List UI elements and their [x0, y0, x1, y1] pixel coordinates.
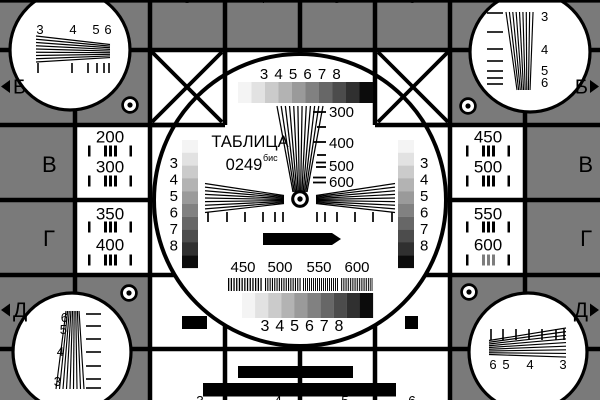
burst-stripe	[346, 278, 347, 291]
panel-freq-tick	[508, 255, 511, 266]
scale-number: 4	[170, 172, 178, 189]
edge-letter-d-right: Д	[574, 299, 588, 322]
scale-number: 3	[420, 155, 428, 172]
panel-freq-tick	[104, 222, 107, 233]
burst-stripe	[327, 278, 328, 291]
burst-stripe	[325, 278, 326, 291]
panel-freq-tick	[130, 255, 133, 266]
panel-freq-tick	[88, 176, 91, 187]
right-grayscale-staircase	[398, 140, 414, 268]
burst-stripe	[335, 278, 336, 291]
multiburst-bars	[228, 278, 372, 291]
grayscale-step	[252, 82, 266, 103]
burst-stripe	[319, 278, 320, 291]
edge-letter-g-right: Г	[580, 226, 592, 251]
burst-stripe	[281, 278, 282, 291]
wedge-tick-label: 400	[329, 135, 354, 152]
scale-number: 6	[303, 66, 311, 83]
panel-freq-tick	[492, 222, 495, 233]
grayscale-step	[182, 255, 198, 268]
corner-number: 6	[489, 357, 496, 372]
grayscale-step	[281, 293, 294, 318]
grayscale-step	[321, 293, 334, 318]
scale-number: 3	[170, 155, 178, 172]
grayscale-step	[347, 293, 360, 318]
grayscale-step	[333, 82, 347, 103]
burst-stripe	[361, 278, 362, 291]
top-grayscale-staircase	[238, 82, 373, 103]
target-marker-dot	[466, 289, 471, 294]
corner-number: 4	[526, 357, 533, 372]
panel-freq-tick	[482, 255, 485, 266]
panel-freq-tick	[487, 146, 490, 157]
burst-stripe	[345, 278, 346, 291]
corner-number: 5	[92, 22, 99, 37]
burst-stripe	[368, 278, 369, 291]
panel-freq-tick	[130, 176, 133, 187]
corner-circle	[469, 293, 587, 400]
panel-freq-tick	[487, 176, 490, 187]
bottom-long-bar	[203, 383, 396, 397]
burst-stripe	[255, 278, 256, 291]
right-black-mark	[405, 316, 418, 329]
grayscale-step	[182, 242, 198, 255]
panel-freq-tick	[482, 146, 485, 157]
burst-stripe	[250, 278, 251, 291]
corner-number: 3	[559, 357, 566, 372]
right-scale-numbers: 345678	[420, 155, 428, 255]
scale-number: 6	[305, 318, 314, 335]
panel-freq-tick	[104, 176, 107, 187]
wedge-tick-label: 600	[329, 174, 354, 191]
grayscale-step	[334, 293, 347, 318]
burst-stripe	[260, 278, 261, 291]
grayscale-step	[238, 82, 252, 103]
scale-number: 4	[275, 318, 284, 335]
panel-freq-tick	[130, 222, 133, 233]
burst-stripe	[295, 278, 296, 291]
burst-label: 500	[267, 259, 292, 276]
panel-frequency-value: 450	[474, 128, 502, 147]
burst-stripe	[331, 278, 332, 291]
panel-frequency-value: 400	[96, 236, 124, 255]
burst-stripe	[363, 278, 364, 291]
grayscale-step	[308, 293, 321, 318]
panel-freq-tick	[508, 176, 511, 187]
burst-stripe	[239, 278, 240, 291]
scale-number: 7	[420, 221, 428, 238]
burst-stripe	[313, 278, 314, 291]
burst-stripe	[309, 278, 310, 291]
black-reference-bar	[263, 233, 332, 245]
corner-number: 6	[104, 22, 111, 37]
burst-stripe	[317, 278, 318, 291]
burst-stripe	[341, 278, 342, 291]
burst-stripe	[242, 278, 243, 291]
burst-stripe	[286, 278, 287, 291]
burst-stripe	[357, 278, 358, 291]
burst-stripe	[311, 278, 312, 291]
grayscale-step	[265, 82, 279, 103]
burst-stripe	[283, 278, 284, 291]
column-digit-bottom: 3	[196, 394, 204, 400]
tv-test-card: 345678 300400500600 ТАБЛИЦА 0249 бис 345…	[0, 0, 600, 400]
panel-frequency-value: 500	[474, 158, 502, 177]
burst-stripe	[355, 278, 356, 291]
panel-freq-tick	[487, 255, 490, 266]
grayscale-step	[279, 82, 293, 103]
grayscale-step	[319, 82, 333, 103]
burst-stripe	[265, 278, 266, 291]
grayscale-step	[398, 230, 414, 243]
corner-fan-line	[74, 311, 75, 389]
panel-freq-tick	[109, 176, 112, 187]
panel-freq-tick	[114, 255, 117, 266]
edge-letter-g-left: Г	[43, 226, 55, 251]
grayscale-step	[398, 255, 414, 268]
grayscale-step	[268, 293, 281, 318]
grayscale-step	[346, 82, 360, 103]
scale-number: 6	[420, 205, 428, 222]
grayscale-step	[294, 293, 307, 318]
burst-stripe	[244, 278, 245, 291]
burst-stripe	[274, 278, 275, 291]
panel-freq-tick	[466, 222, 469, 233]
corner-number: 3	[36, 22, 43, 37]
panel-freq-tick	[492, 146, 495, 157]
panel-frequency-value: 600	[474, 236, 502, 255]
panel-freq-tick	[466, 146, 469, 157]
corner-fan-line	[489, 353, 566, 354]
burst-label: 600	[344, 259, 369, 276]
column-digit-bottom: 4	[274, 394, 282, 400]
panel-frequency-value: 550	[474, 205, 502, 224]
burst-stripe	[303, 278, 304, 291]
grayscale-step	[398, 242, 414, 255]
burst-stripe	[329, 278, 330, 291]
left-scale-numbers: 345678	[170, 155, 178, 255]
burst-stripe	[372, 278, 373, 291]
burst-stripe	[366, 278, 367, 291]
wedge-tick-label: 500	[329, 158, 354, 175]
grayscale-step	[398, 178, 414, 191]
corner-circle	[13, 293, 131, 400]
burst-stripe	[300, 278, 301, 291]
scale-number: 8	[420, 238, 428, 255]
grayscale-step	[182, 191, 198, 204]
panel-freq-tick	[104, 255, 107, 266]
corner-number: 5	[502, 357, 509, 372]
burst-stripe	[258, 278, 259, 291]
scale-number: 8	[335, 318, 344, 335]
card-code-suffix: бис	[263, 153, 278, 163]
panel-freq-tick	[482, 222, 485, 233]
burst-stripe	[267, 278, 268, 291]
grayscale-step	[398, 217, 414, 230]
scale-number: 5	[170, 188, 178, 205]
edge-letter-v-right: В	[578, 152, 593, 177]
burst-label: 450	[230, 259, 255, 276]
scale-number: 5	[420, 188, 428, 205]
panel-frequency-value: 200	[96, 128, 124, 147]
corner-fan-line	[526, 12, 527, 90]
panel-freq-tick	[88, 255, 91, 266]
scale-number: 3	[261, 318, 270, 335]
panel-freq-tick	[109, 146, 112, 157]
panel-freq-tick	[492, 255, 495, 266]
burst-stripe	[247, 278, 248, 291]
panel-freq-tick	[114, 176, 117, 187]
burst-stripe	[323, 278, 324, 291]
burst-stripe	[236, 278, 237, 291]
top-frame-line	[0, 0, 600, 3]
card-code: 0249	[226, 156, 263, 174]
panel-freq-tick	[466, 255, 469, 266]
burst-stripe	[333, 278, 334, 291]
burst-stripe	[348, 278, 349, 291]
scale-number: 8	[332, 66, 340, 83]
burst-stripe	[228, 278, 229, 291]
grayscale-step	[360, 82, 374, 103]
burst-stripe	[279, 278, 280, 291]
burst-stripe	[307, 278, 308, 291]
burst-stripe	[233, 278, 234, 291]
left-black-mark	[182, 316, 207, 329]
burst-stripe	[270, 278, 271, 291]
grayscale-step	[398, 191, 414, 204]
edge-letter-d-left: Д	[13, 299, 27, 322]
grayscale-step	[398, 204, 414, 217]
bottom-grayscale-staircase	[242, 293, 373, 318]
corner-number: 3	[541, 9, 548, 24]
corner-number: 4	[541, 42, 548, 57]
scale-number: 4	[274, 66, 282, 83]
corner-number: 4	[57, 344, 64, 359]
panel-freq-tick	[482, 176, 485, 187]
scale-number: 7	[320, 318, 329, 335]
panel-freq-tick	[492, 176, 495, 187]
column-digit-bottom: 5	[341, 394, 349, 400]
corner-number: 5	[60, 322, 67, 337]
burst-stripe	[352, 278, 353, 291]
target-marker-dot	[126, 290, 131, 295]
test-card-canvas: 345678 300400500600 ТАБЛИЦА 0249 бис 345…	[0, 0, 600, 400]
scale-number: 6	[170, 205, 178, 222]
panel-freq-tick	[109, 255, 112, 266]
burst-stripe	[315, 278, 316, 291]
panel-freq-tick	[109, 222, 112, 233]
burst-stripe	[277, 278, 278, 291]
edge-letter-v-left: В	[42, 152, 57, 177]
burst-stripe	[321, 278, 322, 291]
grayscale-step	[182, 140, 198, 153]
corner-number: 6	[541, 75, 548, 90]
grayscale-step	[306, 82, 320, 103]
burst-stripe	[290, 278, 291, 291]
panel-freq-tick	[114, 146, 117, 157]
panel-freq-tick	[487, 222, 490, 233]
corner-number: 4	[69, 22, 76, 37]
corner-number: 3	[54, 374, 61, 389]
scale-number: 4	[420, 172, 428, 189]
center-bullseye-dot	[297, 196, 302, 201]
burst-stripe	[293, 278, 294, 291]
panel-frequency-value: 300	[96, 158, 124, 177]
burst-stripe	[359, 278, 360, 291]
panel-freq-tick	[508, 222, 511, 233]
burst-stripe	[354, 278, 355, 291]
grayscale-step	[182, 217, 198, 230]
burst-stripe	[272, 278, 273, 291]
grayscale-step	[182, 204, 198, 217]
grayscale-step	[182, 166, 198, 179]
burst-label: 550	[306, 259, 331, 276]
panel-freq-tick	[114, 222, 117, 233]
panel-freq-tick	[508, 146, 511, 157]
burst-stripe	[288, 278, 289, 291]
panel-freq-tick	[88, 222, 91, 233]
burst-stripe	[343, 278, 344, 291]
scale-number: 5	[290, 318, 299, 335]
burst-stripe	[305, 278, 306, 291]
grayscale-step	[182, 230, 198, 243]
burst-stripe	[231, 278, 232, 291]
burst-stripe	[350, 278, 351, 291]
panel-freq-tick	[130, 146, 133, 157]
column-digit-bottom: 6	[408, 394, 416, 400]
scale-number: 7	[318, 66, 326, 83]
grayscale-step	[242, 293, 255, 318]
grayscale-step	[182, 178, 198, 191]
target-marker-dot	[465, 103, 470, 108]
panel-freq-tick	[104, 146, 107, 157]
burst-stripe	[364, 278, 365, 291]
bottom-short-bar	[238, 366, 353, 378]
card-title: ТАБЛИЦА	[211, 133, 288, 151]
grayscale-step	[255, 293, 268, 318]
panel-freq-tick	[88, 146, 91, 157]
edge-letter-b-right: Б	[575, 77, 588, 99]
scale-number: 8	[170, 238, 178, 255]
left-grayscale-staircase	[182, 140, 198, 268]
scale-number: 3	[260, 66, 268, 83]
scale-number: 7	[170, 221, 178, 238]
grayscale-step	[398, 140, 414, 153]
target-marker-dot	[127, 102, 132, 107]
edge-letter-b-left: Б	[13, 77, 26, 99]
grayscale-step	[182, 153, 198, 166]
grayscale-step	[398, 166, 414, 179]
panel-freq-tick	[466, 176, 469, 187]
burst-stripe	[370, 278, 371, 291]
panel-frequency-value: 350	[96, 205, 124, 224]
grayscale-step	[360, 293, 373, 318]
wedge-tick-label: 300	[329, 104, 354, 121]
burst-stripe	[252, 278, 253, 291]
scale-number: 5	[289, 66, 297, 83]
grayscale-step	[292, 82, 306, 103]
grayscale-step	[398, 153, 414, 166]
burst-stripe	[297, 278, 298, 291]
burst-stripe	[337, 278, 338, 291]
